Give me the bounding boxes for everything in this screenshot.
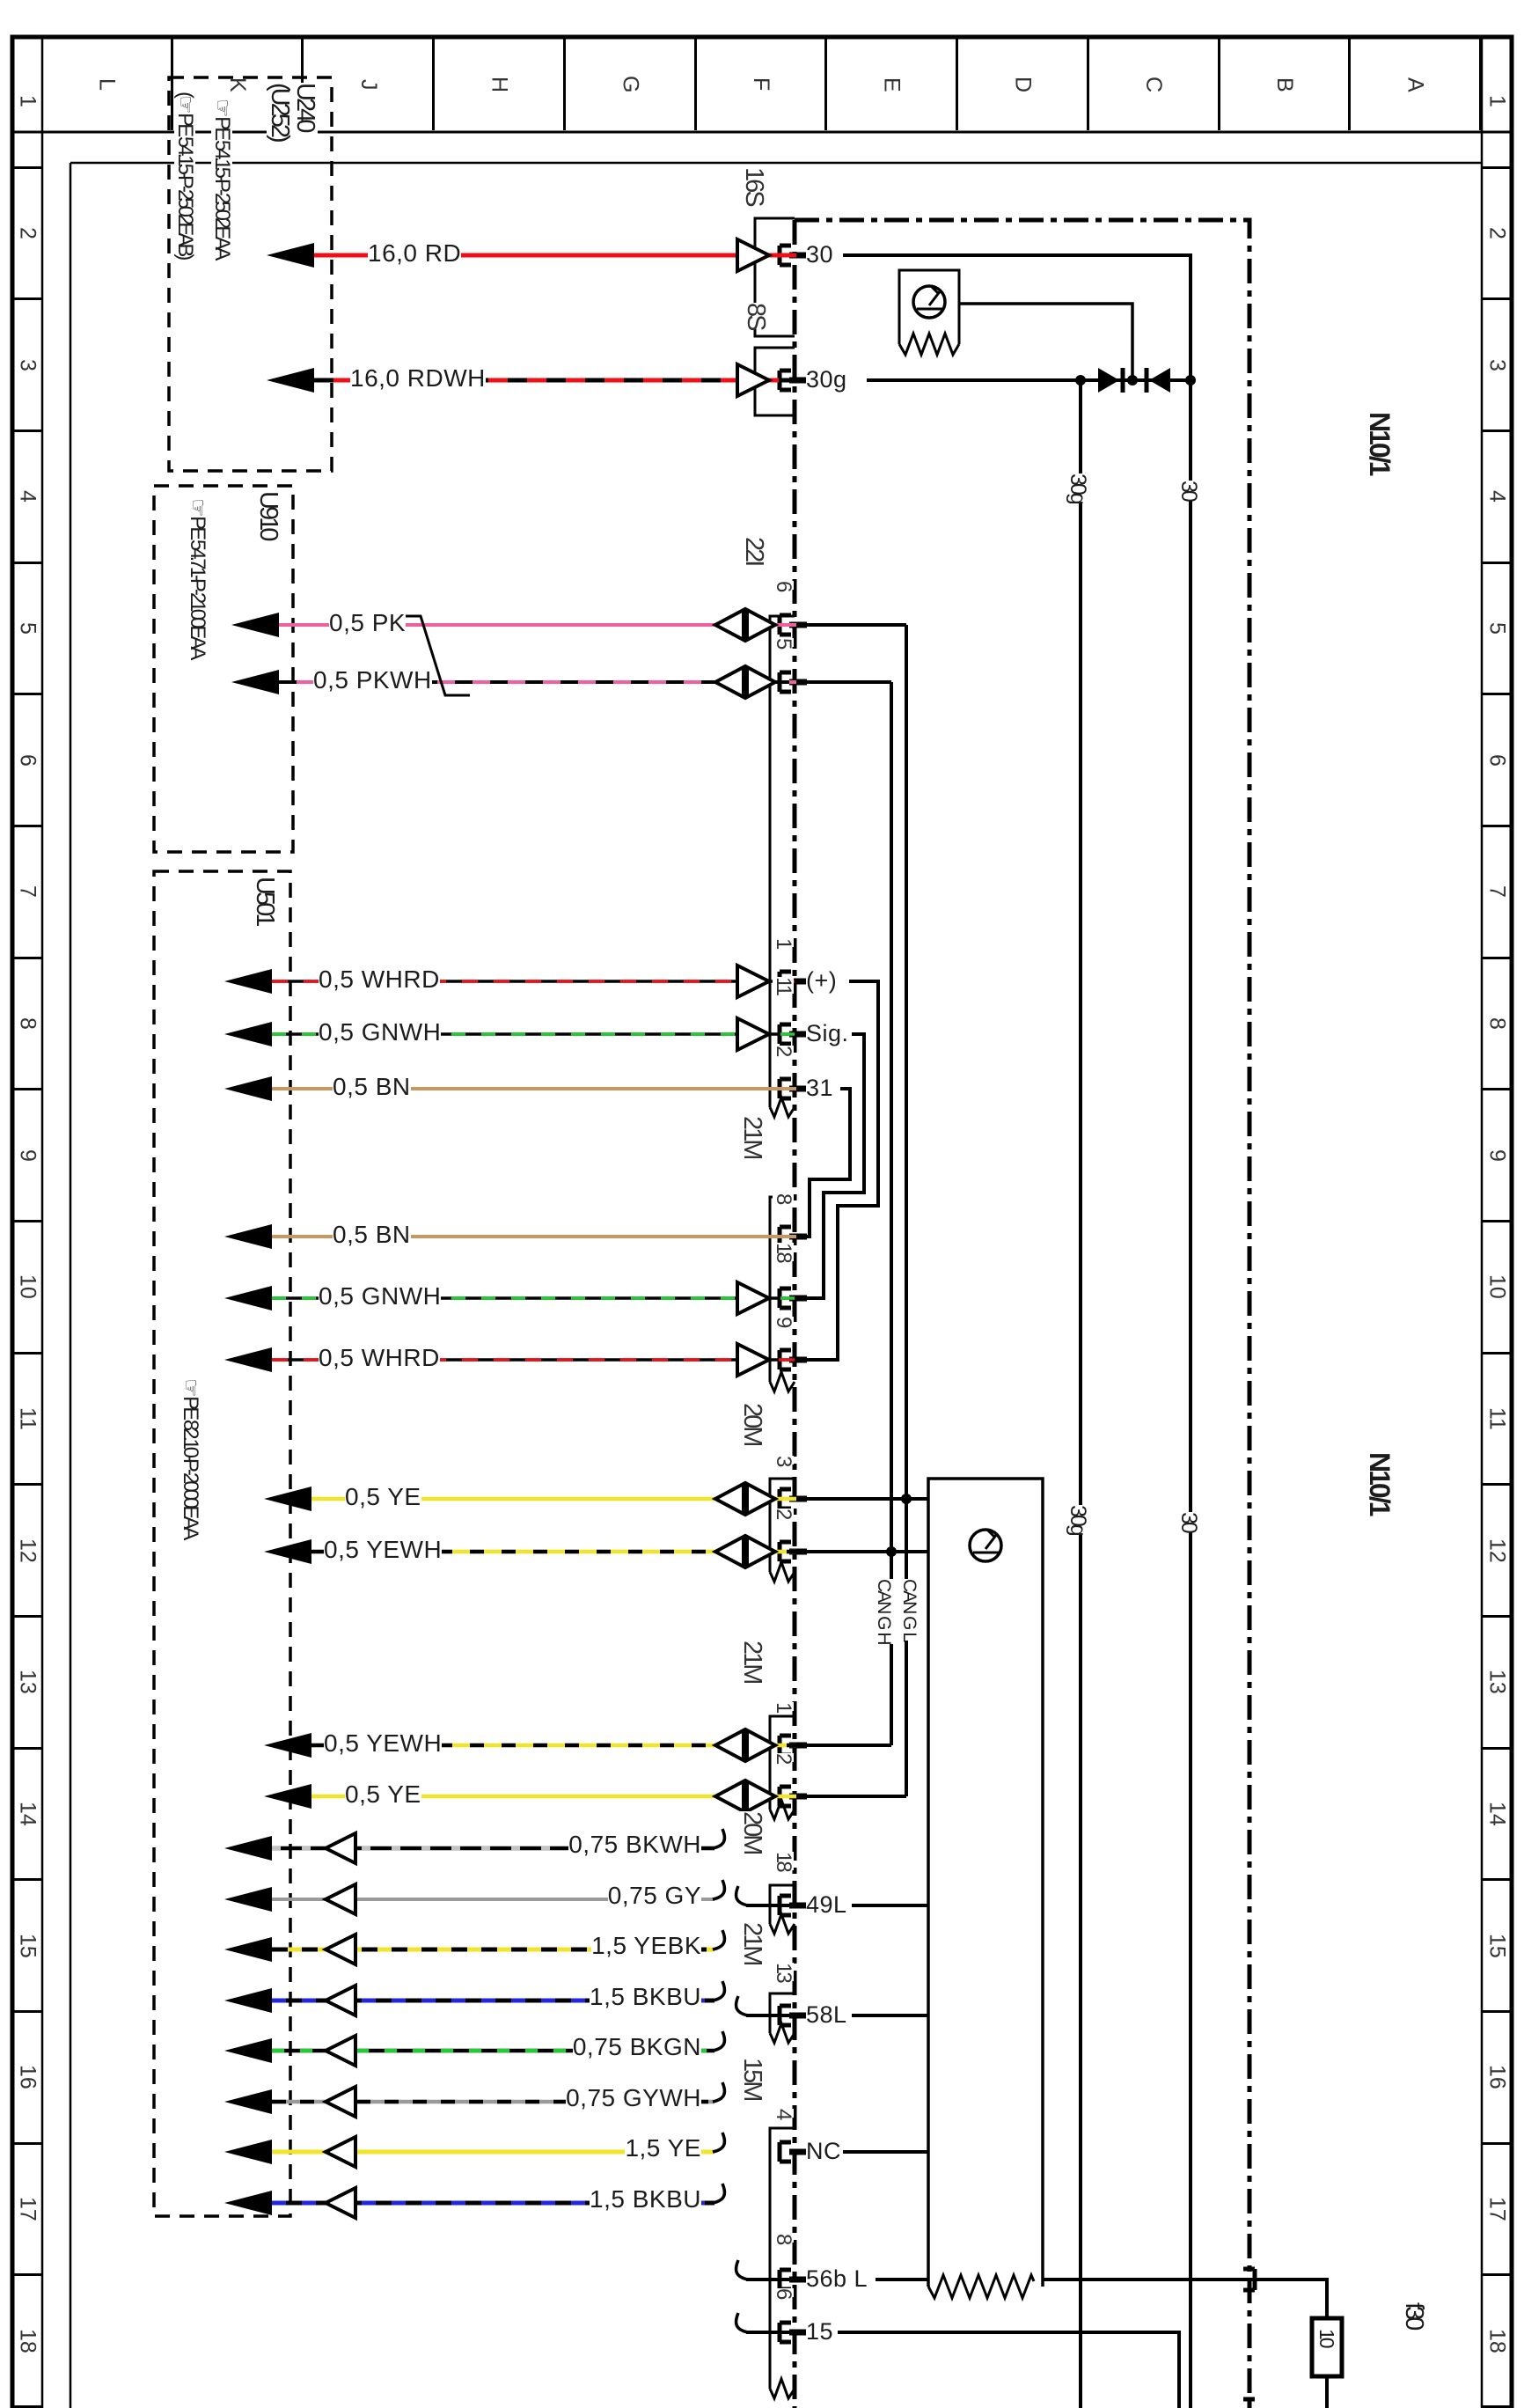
border-letter-cell: J	[304, 39, 435, 130]
pin-number: 9	[773, 1317, 794, 1325]
schematic-canvas	[0, 0, 1524, 2408]
control-unit-label-top: N10/1	[1366, 412, 1394, 474]
coupler-id-u501: U501	[252, 877, 277, 923]
border-letter-cell: G	[566, 39, 697, 130]
wire-label: 0,75 BKGN	[573, 2035, 701, 2059]
border-letter-cell: L	[42, 39, 173, 130]
border-number-cell: 15	[12, 1881, 42, 2013]
wire-label: 0,75 BKWH	[568, 1832, 701, 1857]
border-letter-cell: D	[958, 39, 1089, 130]
coupler-id-u910: U910	[255, 491, 281, 538]
doc-ref-u240-1: ☞ PE 54.15-P-2502EAA	[211, 99, 232, 257]
border-number-cell: 16	[1482, 2013, 1512, 2145]
terminal-31: 31	[806, 1076, 833, 1100]
pin-number: 2	[773, 1509, 794, 1517]
control-unit-label-mid: N10/1	[1366, 1452, 1394, 1514]
connector-21m-a: 21M	[739, 1116, 765, 1157]
pin-number: 18	[773, 1852, 794, 1870]
wire-label: 0,75 GYWH	[566, 2086, 701, 2111]
border-number-cell: 1	[1482, 37, 1512, 169]
pin-number: 13	[773, 1963, 794, 1981]
wire-label: 0,5 YEWH	[324, 1731, 442, 1756]
wire-label: 0,5 GNWH	[319, 1020, 441, 1045]
border-number-cell: 1	[12, 37, 42, 169]
pin-number: 5	[773, 638, 794, 647]
border-number-cell: 10	[1482, 1222, 1512, 1354]
border-letter-cell: F	[697, 39, 828, 130]
bus-30-label-top: 30	[1177, 481, 1199, 500]
pin-number: 2	[773, 1753, 794, 1762]
border-number-cell: 17	[1482, 2145, 1512, 2277]
wire-label: 1,5 BKBU	[590, 1985, 701, 2009]
pin-number: 11	[773, 977, 794, 994]
terminal-plus: (+)	[806, 969, 837, 993]
border-number-cell: 5	[1482, 564, 1512, 696]
pin-number: 8	[773, 2234, 794, 2243]
border-number-cell: 16	[12, 2013, 42, 2145]
coupler-id-u240: U240(U252)	[267, 83, 318, 140]
border-number-cell: 3	[12, 300, 42, 432]
border-number-cell: 3	[1482, 300, 1512, 432]
connector-20m-b: 20M	[739, 1811, 765, 1853]
border-letter-cell: A	[1351, 39, 1482, 130]
connector-21m-b: 21M	[739, 1641, 765, 1682]
can-high-label: CAN G H	[875, 1579, 893, 1644]
wire-label: 16,0 RDWH	[350, 366, 486, 391]
wire-label: 0,5 BN	[333, 1222, 411, 1247]
border-number-cell: 10	[12, 1222, 42, 1354]
border-number-cell: 8	[1482, 959, 1512, 1091]
border-number-cell: 6	[12, 695, 42, 827]
border-number-cell: 2	[12, 169, 42, 301]
border-number-cell: 13	[12, 1618, 42, 1750]
connector-8s: 8S	[743, 303, 768, 328]
border-number-cell: 2	[1482, 169, 1512, 301]
pin-number: 6	[773, 581, 794, 590]
wiring-diagram-page: LKJHGFEDCBA 123456789101112131415161718 …	[0, 0, 1524, 2408]
border-number-cell: 12	[1482, 1486, 1512, 1618]
border-number-cell: 6	[1482, 695, 1512, 827]
wire-label: 0,5 WHRD	[319, 967, 440, 992]
terminal-sig: Sig.	[806, 1022, 849, 1046]
pin-number: 1	[773, 938, 794, 947]
border-number-cell: 18	[1482, 2276, 1512, 2408]
border-letter-cell: H	[435, 39, 566, 130]
pin-number: 6	[773, 2288, 794, 2297]
fuse-value: 10	[1316, 2329, 1337, 2346]
border-number-cell: 8	[12, 959, 42, 1091]
bus-30g-label-top: 30g	[1066, 474, 1088, 503]
terminal-56bl: 56b L	[806, 2267, 868, 2291]
border-number-cell: 9	[1482, 1090, 1512, 1222]
border-number-cell: 18	[12, 2276, 42, 2408]
connector-22i: 22I	[741, 537, 766, 564]
pin-number: 18	[773, 1243, 794, 1261]
wire-label: 0,5 YE	[345, 1485, 421, 1509]
bus-30-label-mid: 30	[1177, 1512, 1199, 1531]
pin-number: 3	[773, 1456, 794, 1465]
doc-ref-u501: ☞ PE 82.10-P-2000EAA	[180, 1378, 201, 1537]
border-number-cell: 5	[12, 564, 42, 696]
bus-30g-label-mid: 30g	[1066, 1505, 1088, 1534]
wire-label: 0,5 WHRD	[319, 1346, 440, 1370]
wire-label: 0,5 YE	[345, 1782, 421, 1807]
border-letter-cell: B	[1220, 39, 1352, 130]
border-number-cell: 14	[1482, 1750, 1512, 1882]
connector-16s: 16S	[741, 167, 766, 205]
border-number-cell: 11	[1482, 1354, 1512, 1487]
border-number-cell: 15	[1482, 1881, 1512, 2013]
pin-number: 2	[773, 1046, 794, 1054]
doc-ref-u910: ☞ PE 54.71-P-2100EAA	[187, 498, 208, 657]
wire-label: 0,5 PK	[329, 611, 406, 635]
border-number-cell: 13	[1482, 1618, 1512, 1750]
border-number-cell: 17	[12, 2145, 42, 2277]
border-letter-cell: C	[1089, 39, 1220, 130]
pin-number: 1	[773, 1702, 794, 1711]
connector-15m: 15M	[739, 2058, 765, 2099]
border-number-cell: 7	[12, 827, 42, 959]
terminal-30: 30	[806, 243, 833, 267]
wire-label: 0,75 GY	[608, 1883, 701, 1908]
wire-label: 0,5 YEWH	[324, 1538, 442, 1562]
border-number-cell: 7	[1482, 827, 1512, 959]
border-number-cell: 14	[12, 1750, 42, 1882]
can-low-label: CAN G L	[900, 1579, 919, 1641]
pin-number: 8	[773, 1193, 794, 1202]
wire-label: 1,5 BKBU	[590, 2187, 701, 2212]
wire-label: 1,5 YEBK	[591, 1934, 701, 1958]
wire-label: 0,5 BN	[333, 1075, 411, 1099]
pin-number: 4	[773, 2109, 794, 2118]
terminal-30g: 30g	[806, 368, 847, 392]
terminal-58l: 58L	[806, 2003, 847, 2027]
fuse-label-f30: f30	[1401, 2302, 1426, 2327]
doc-ref-u240-2: (☞ PE 54.15-P-2502EAB)	[174, 92, 195, 257]
border-number-cell: 4	[1482, 432, 1512, 564]
wire-label: 0,5 PKWH	[313, 668, 432, 693]
terminal-nc: NC	[806, 2140, 841, 2163]
wire-label: 1,5 YE	[625, 2136, 701, 2161]
border-number-cell: 11	[12, 1354, 42, 1487]
wire-label: 16,0 RD	[368, 241, 461, 266]
terminal-15: 15	[806, 2320, 833, 2344]
connector-20m-a: 20M	[739, 1403, 765, 1444]
connector-21m-c: 21M	[739, 1922, 765, 1964]
border-number-cell: 9	[12, 1090, 42, 1222]
border-number-cell: 12	[12, 1486, 42, 1618]
terminal-49l: 49L	[806, 1893, 847, 1917]
wire-label: 0,5 GNWH	[319, 1284, 441, 1309]
border-letter-cell: E	[827, 39, 958, 130]
border-number-cell: 4	[12, 432, 42, 564]
